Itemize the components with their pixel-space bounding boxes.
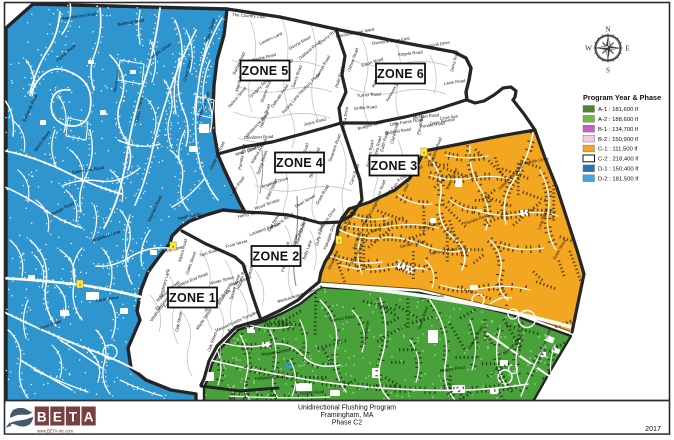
svg-text:A-2 : 188,600 lf: A-2 : 188,600 lf — [598, 117, 638, 123]
svg-text:B-2 : 150,900 lf: B-2 : 150,900 lf — [598, 137, 638, 143]
svg-text:E: E — [625, 44, 630, 53]
svg-text:A-1 : 181,600 lf: A-1 : 181,600 lf — [598, 107, 638, 113]
svg-text:E: E — [53, 410, 62, 425]
svg-text:ZONE 5: ZONE 5 — [242, 64, 289, 78]
svg-text:ZONE 2: ZONE 2 — [253, 250, 300, 264]
svg-text:C-2 : 218,400 lf: C-2 : 218,400 lf — [598, 157, 639, 163]
svg-text:2017: 2017 — [645, 424, 661, 433]
svg-text:Framingham, MA: Framingham, MA — [321, 412, 374, 419]
svg-text:S: S — [606, 66, 610, 75]
svg-text:ZONE 4: ZONE 4 — [276, 156, 323, 170]
svg-text:C-1 : 111,500 lf: C-1 : 111,500 lf — [598, 147, 638, 153]
svg-text:ZONE 3: ZONE 3 — [371, 159, 418, 173]
svg-text:D-2 : 181,500 lf: D-2 : 181,500 lf — [598, 176, 639, 182]
svg-text:ZONE 1: ZONE 1 — [169, 291, 216, 305]
svg-text:B: B — [37, 410, 47, 425]
svg-text:A: A — [84, 410, 94, 425]
svg-text:Phase C2: Phase C2 — [332, 420, 362, 427]
svg-text:ZONE 6: ZONE 6 — [377, 67, 424, 81]
svg-text:www.BETA-Inc.com: www.BETA-Inc.com — [37, 428, 73, 433]
svg-text:T: T — [69, 410, 78, 425]
svg-text:Program Year & Phase: Program Year & Phase — [583, 93, 661, 102]
svg-text:Unidirectional Flushing Progra: Unidirectional Flushing Program — [298, 405, 396, 412]
svg-text:W: W — [585, 44, 593, 53]
svg-text:B-1 : 134,700 lf: B-1 : 134,700 lf — [598, 127, 638, 133]
svg-text:Davidson Road: Davidson Road — [244, 134, 274, 140]
svg-text:N: N — [605, 25, 611, 34]
svg-text:D-1 : 150,400 lf: D-1 : 150,400 lf — [598, 167, 639, 173]
